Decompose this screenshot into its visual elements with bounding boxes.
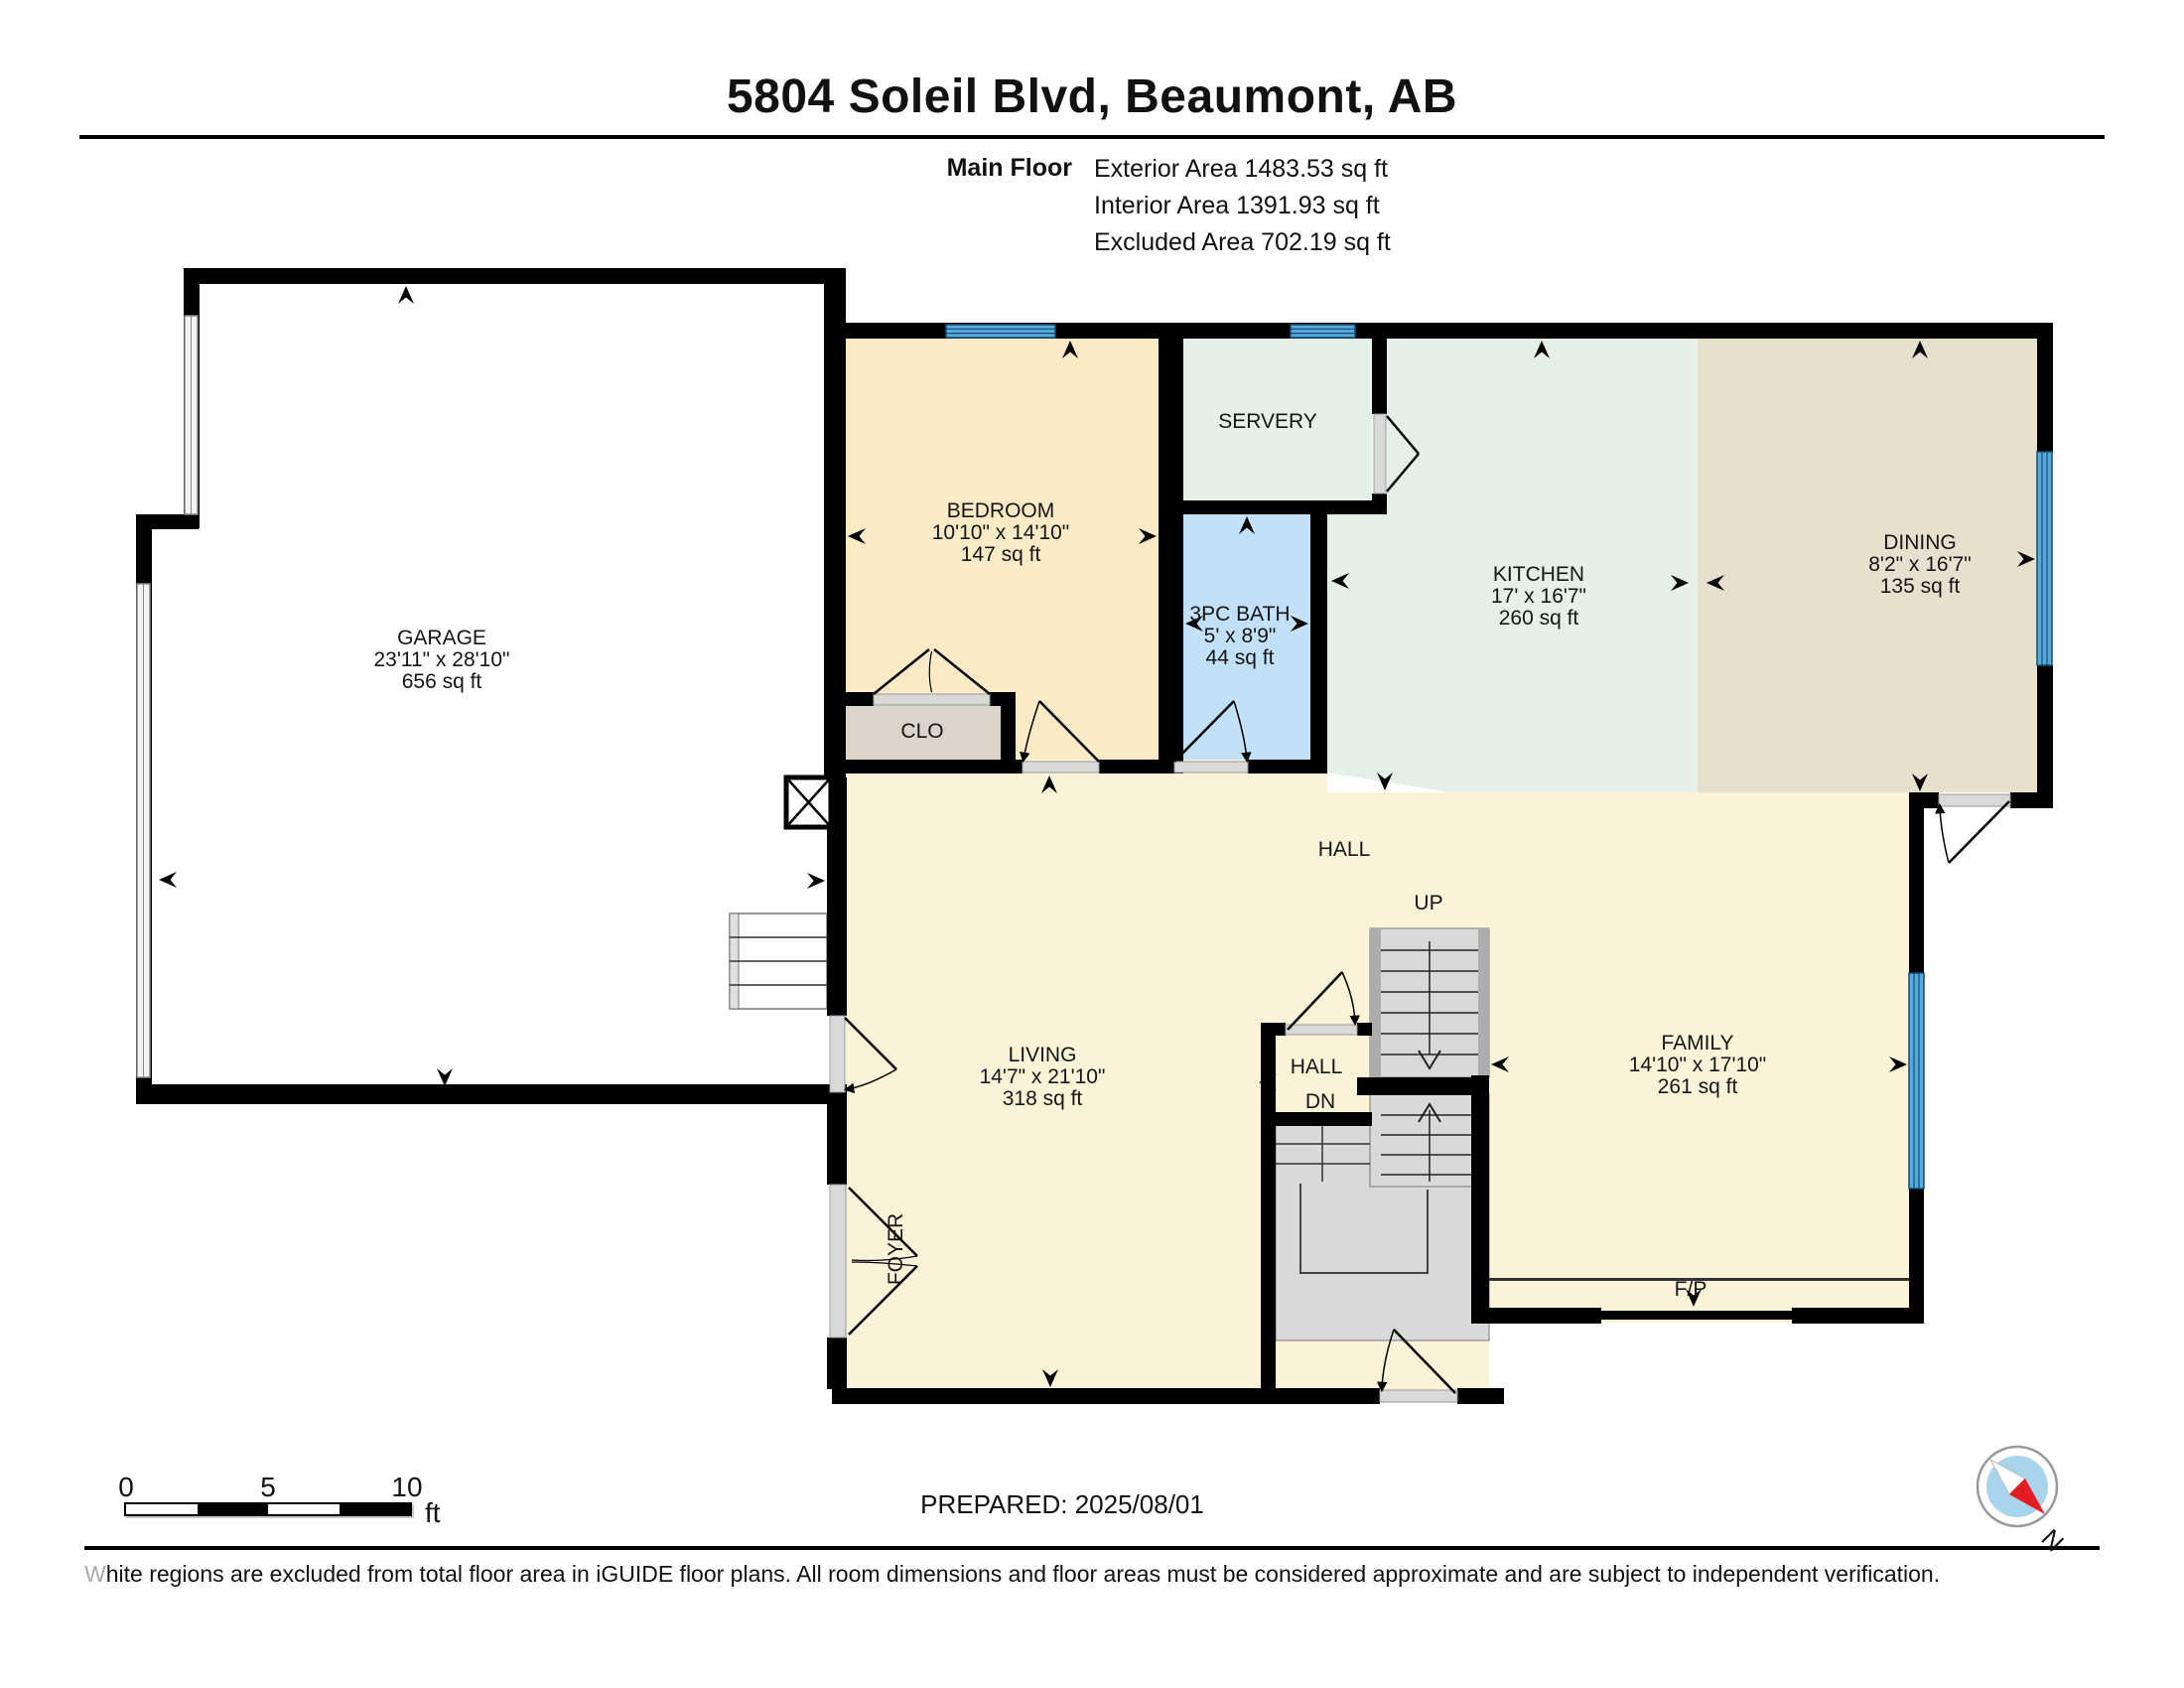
room-area: 260 sq ft <box>1491 608 1586 630</box>
scale-segment <box>126 1504 198 1514</box>
prepared-date: PREPARED: 2025/08/01 <box>864 1489 1261 1520</box>
page-title: 5804 Soleil Blvd, Beaumont, AB <box>0 70 2184 124</box>
excluded-area: Excluded Area 702.19 sq ft <box>1094 228 1391 257</box>
garage-window-upper <box>185 316 198 514</box>
room-name: KITCHEN <box>1491 564 1586 586</box>
dining-window <box>2037 452 2052 665</box>
garage-steps <box>730 914 827 1009</box>
utility-x-box <box>786 777 831 827</box>
dining-deck-door <box>1940 801 2009 863</box>
room-dims: 5' x 8'9" <box>1189 626 1290 647</box>
stairs-up-label: UP <box>1414 893 1442 914</box>
dining-fill <box>1698 338 2037 792</box>
floor-label: Main Floor <box>834 154 1072 183</box>
floor-plan-drawing <box>0 0 2184 1688</box>
footer-divider <box>84 1546 2100 1550</box>
room-dims: 8'2" x 16'7" <box>1868 554 1972 576</box>
room-dims: 23'11" x 28'10" <box>374 649 510 671</box>
scale-segment <box>268 1504 340 1514</box>
room-area: 44 sq ft <box>1189 647 1290 669</box>
room-dims: 14'7" x 21'10" <box>980 1066 1106 1088</box>
scale-tick-10: 10 <box>391 1472 422 1503</box>
scale-bar <box>124 1502 412 1516</box>
room-area: 261 sq ft <box>1629 1076 1767 1098</box>
room-name: BEDROOM <box>932 500 1070 522</box>
foyer-label: FOYER <box>885 1213 908 1285</box>
stairs-up <box>1370 928 1489 1077</box>
scale-segment <box>340 1504 411 1514</box>
kitchen-label: KITCHEN 17' x 16'7" 260 sq ft <box>1491 564 1586 630</box>
hall-small-label: HALL <box>1291 1056 1343 1078</box>
room-dims: 10'10" x 14'10" <box>932 522 1070 544</box>
hall-label: HALL <box>1318 839 1371 861</box>
room-name: LIVING <box>980 1045 1106 1066</box>
family-window <box>1909 973 1924 1189</box>
closet-label: CLO <box>900 721 943 743</box>
bath-label: 3PC BATH 5' x 8'9" 44 sq ft <box>1189 604 1290 669</box>
family-label: FAMILY 14'10" x 17'10" 261 sq ft <box>1629 1033 1767 1098</box>
room-name: GARAGE <box>374 628 510 649</box>
garage-window-lower <box>137 584 150 1077</box>
living-label: LIVING 14'7" x 21'10" 318 sq ft <box>980 1045 1106 1110</box>
room-area: 656 sq ft <box>374 671 510 693</box>
bedroom-label: BEDROOM 10'10" x 14'10" 147 sq ft <box>932 500 1070 566</box>
servery-label: SERVERY <box>1218 411 1317 433</box>
servery-window <box>1291 325 1355 338</box>
stairs-down-label: DN <box>1305 1091 1335 1113</box>
compass-icon <box>1978 1447 2057 1526</box>
bedroom-window <box>946 325 1055 338</box>
room-dims: 14'10" x 17'10" <box>1629 1055 1767 1076</box>
room-name: FAMILY <box>1629 1033 1767 1055</box>
scale-tick-0: 0 <box>118 1472 134 1503</box>
room-area: 147 sq ft <box>932 544 1070 566</box>
scale-tick-5: 5 <box>260 1472 276 1503</box>
room-area: 135 sq ft <box>1868 576 1972 598</box>
exterior-area: Exterior Area 1483.53 sq ft <box>1094 155 1388 184</box>
fireplace-label: F/P <box>1675 1279 1707 1301</box>
garage-label: GARAGE 23'11" x 28'10" 656 sq ft <box>374 628 510 693</box>
room-area: 318 sq ft <box>980 1088 1106 1110</box>
scale-segment <box>198 1504 269 1514</box>
interior-area: Interior Area 1391.93 sq ft <box>1094 192 1380 220</box>
room-dims: 17' x 16'7" <box>1491 586 1586 608</box>
room-name: DINING <box>1868 532 1972 554</box>
scale-unit: ft <box>425 1497 441 1529</box>
room-name: 3PC BATH <box>1189 604 1290 626</box>
dining-label: DINING 8'2" x 16'7" 135 sq ft <box>1868 532 1972 598</box>
floorplan-page: 5804 Soleil Blvd, Beaumont, AB Main Floo… <box>0 0 2184 1688</box>
disclaimer-text: White regions are excluded from total fl… <box>84 1561 2129 1588</box>
header-divider <box>79 135 2105 139</box>
